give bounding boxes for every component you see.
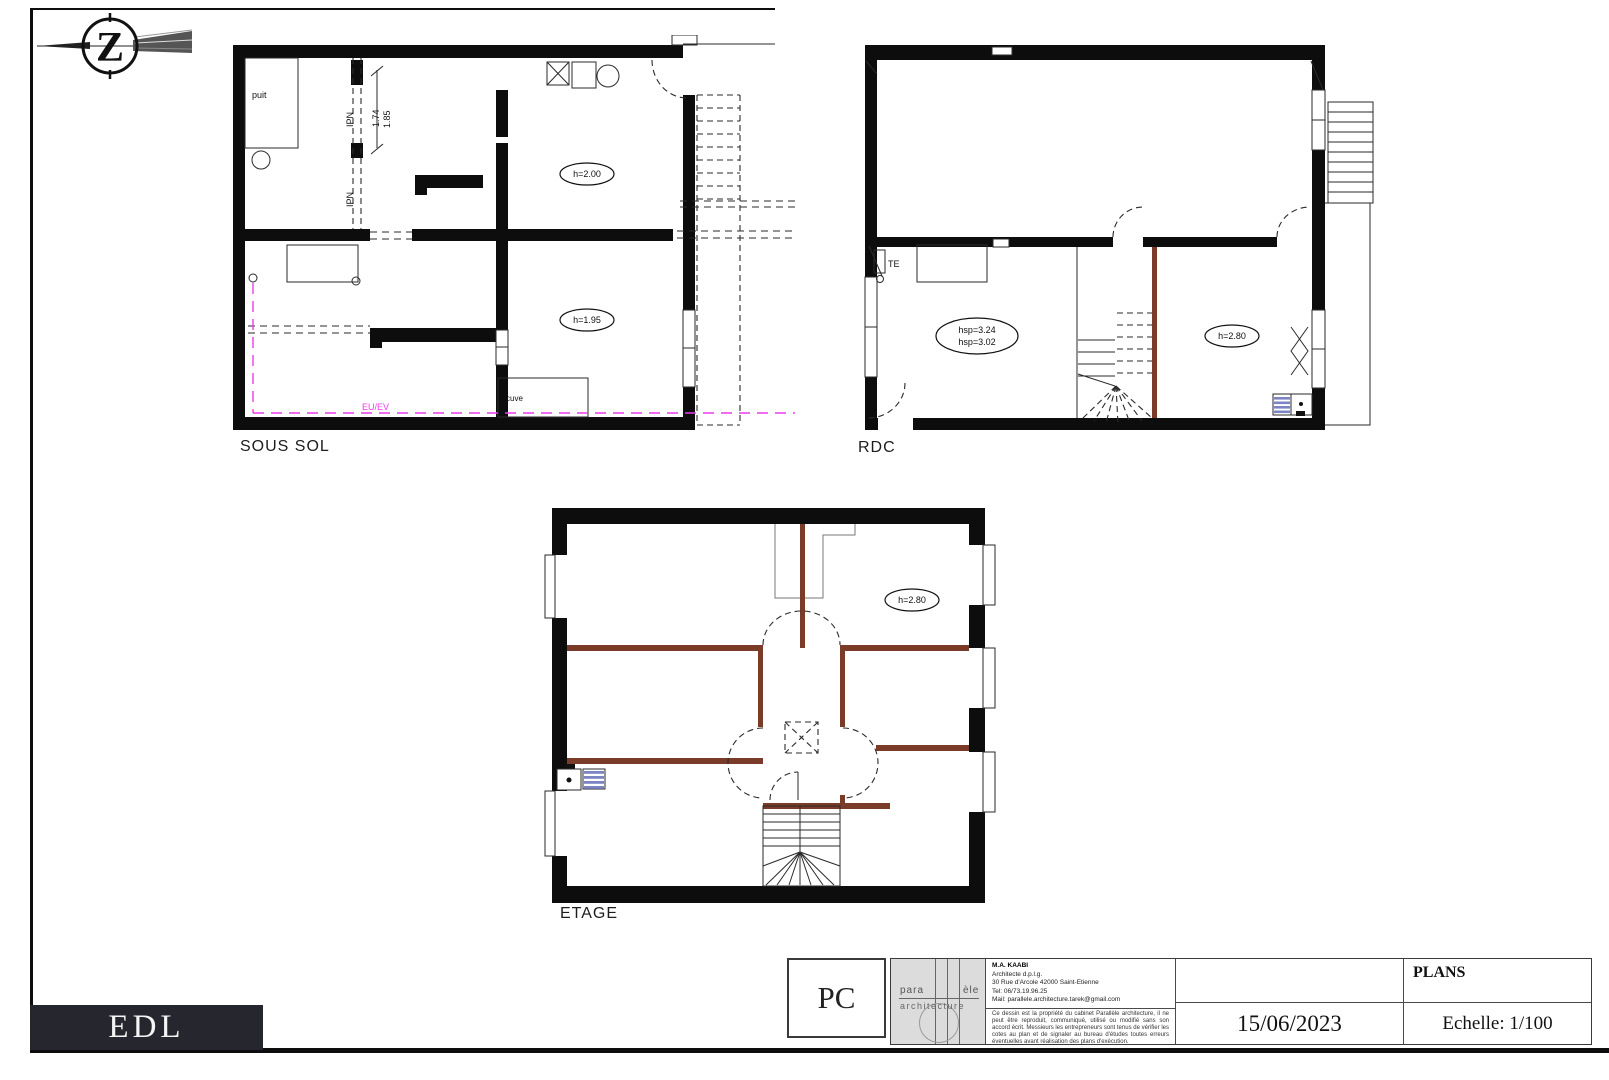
table-symbol	[249, 245, 360, 285]
permit-code: PC	[818, 980, 856, 1016]
copyright-disclaimer: Ce dessin est la propriété du cabinet Pa…	[986, 1008, 1175, 1048]
sheet-label: EDL	[108, 1009, 184, 1046]
winder-staircase	[763, 806, 840, 886]
sink-icon	[1273, 394, 1312, 416]
svg-text:h=1.95: h=1.95	[573, 315, 601, 325]
north-arrow-icon: Z	[30, 5, 205, 93]
rdc-walls	[865, 45, 1325, 430]
dim-label-b: 1.85	[382, 110, 392, 128]
terrace-outline	[1325, 203, 1370, 425]
drawing-date: 15/06/2023	[1176, 1003, 1403, 1044]
sheet-label-badge: EDL	[30, 1005, 263, 1050]
height-annotation: h=2.80	[885, 589, 939, 611]
furniture-box	[917, 245, 987, 282]
door-swing-arc	[652, 60, 687, 98]
drawing-sheet: Z	[0, 0, 1609, 1080]
contact-line: 30 Rue d'Arcole 42000 Saint-Etienne	[992, 979, 1169, 988]
etage-partitions	[567, 645, 969, 809]
contact-line: Architecte d.p.l.g.	[992, 971, 1169, 980]
wall-vent	[993, 239, 1009, 247]
logo-subtitle: architecture	[900, 1001, 965, 1011]
height-annotation: hsp=3.24 hsp=3.02 h=2.80	[936, 318, 1259, 354]
plan-title-rdc: RDC	[858, 439, 896, 457]
date-cell: 15/06/2023	[1176, 959, 1404, 1044]
sous-sol-walls	[233, 45, 695, 430]
plan-title-etage: ETAGE	[560, 905, 618, 923]
shutter-symbol	[1291, 327, 1308, 375]
svg-text:hsp=3.02: hsp=3.02	[958, 337, 995, 347]
contact-line: M.A. KAABI	[992, 962, 1169, 971]
drawing-scale: Echelle: 1/100	[1404, 1003, 1591, 1044]
doc-title: PLANS	[1404, 959, 1591, 1003]
permit-code-box: PC	[787, 958, 886, 1038]
doc-title-cell: PLANS Echelle: 1/100	[1404, 959, 1591, 1044]
architect-logo: para èle architecture	[891, 959, 986, 1044]
laundry-fixtures	[547, 62, 619, 88]
title-block: para èle architecture M.A. KAABI Archite…	[890, 958, 1592, 1045]
etage-walls	[552, 508, 985, 903]
logo-word-end: èle	[963, 985, 979, 996]
floor-plan-sous-sol: puit IPN IPN 1.74 1.85	[230, 35, 805, 470]
wall-vent	[992, 47, 1012, 55]
ipn-label-bottom: IPN	[345, 192, 355, 207]
plan-title-sous-sol: SOUS SOL	[240, 438, 330, 456]
gap-dashes	[248, 201, 795, 333]
te-label: TE	[888, 259, 900, 269]
dim-label-a: 1.74	[371, 109, 381, 127]
tank-symbol: cuve	[498, 378, 588, 417]
svg-text:hsp=3.24: hsp=3.24	[958, 325, 995, 335]
boiler-icon	[597, 65, 619, 87]
height-annotation: h=2.00 h=1.95	[560, 163, 614, 331]
frame-border-bottom	[30, 1048, 1609, 1053]
ipn-label-top: IPN	[345, 112, 355, 127]
svg-text:h=2.80: h=2.80	[898, 595, 926, 605]
frame-border-left	[30, 8, 33, 1053]
projected-stairs	[697, 95, 740, 425]
tank-label: cuve	[506, 394, 523, 403]
appliance-box-icon	[572, 62, 596, 88]
skylight-icon	[785, 722, 818, 753]
floor-plan-rdc: TE	[840, 35, 1400, 470]
svg-text:h=2.80: h=2.80	[1218, 331, 1246, 341]
floor-plan-etage: h=2.80	[535, 500, 1000, 932]
well-label: puit	[252, 90, 267, 100]
drain-label: EU/EV	[362, 402, 389, 412]
winder-staircase	[1077, 247, 1157, 424]
contact-line: Tel: 06/73.19.96.25	[992, 988, 1169, 997]
contact-line: Mail: parallele.architecture.tarek@gmail…	[992, 996, 1169, 1005]
architect-contact: M.A. KAABI Architecte d.p.l.g. 30 Rue d'…	[986, 959, 1175, 1008]
drain-line: EU/EV	[253, 283, 795, 413]
exterior-stairs	[1328, 102, 1373, 203]
logo-word-start: para	[900, 985, 924, 996]
well-symbol: puit	[245, 58, 298, 169]
architect-info-cell: M.A. KAABI Architecte d.p.l.g. 30 Rue d'…	[986, 959, 1176, 1044]
north-letter: Z	[96, 25, 124, 71]
chimney-symbol	[775, 524, 855, 648]
svg-text:h=2.00: h=2.00	[573, 169, 601, 179]
